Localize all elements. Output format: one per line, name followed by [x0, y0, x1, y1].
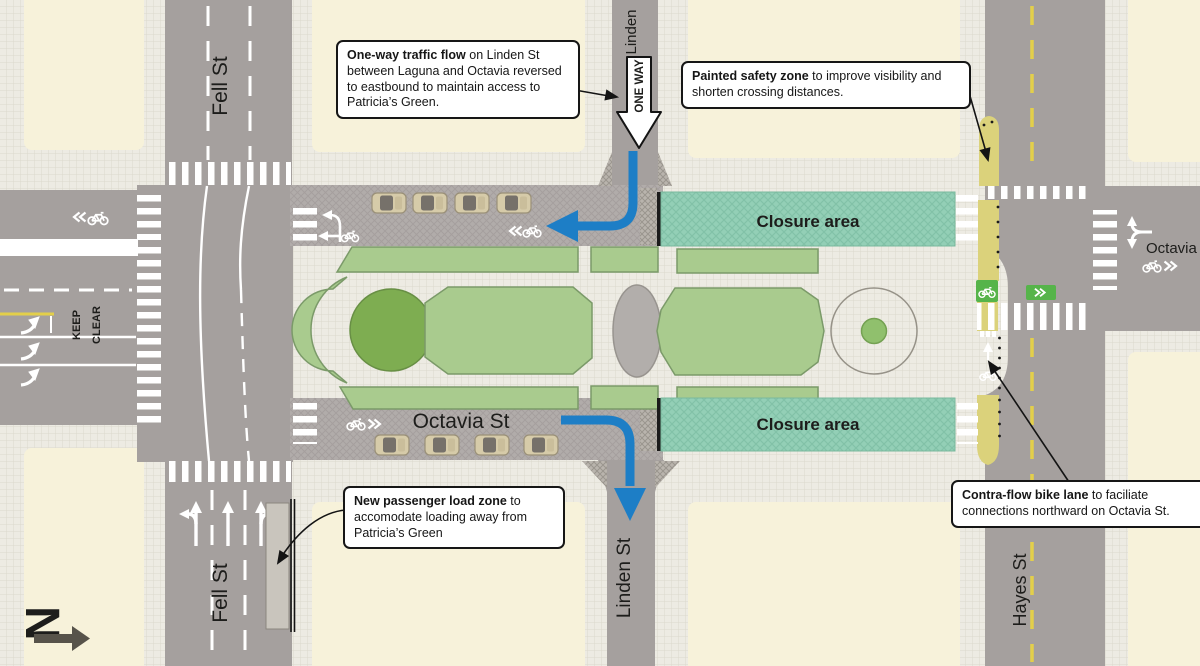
street-label-fell-top: Fell St [209, 56, 232, 116]
parked-car [375, 435, 409, 455]
closure-area-label-south: Closure area [757, 415, 861, 434]
crosswalk [167, 162, 291, 185]
street-label-linden-bottom: Linden St [614, 537, 635, 618]
callout-contraflow: Contra-flow bike lane to faciliate conne… [951, 480, 1200, 528]
lawn-east [657, 288, 824, 375]
painted-safety-zone-south [977, 395, 999, 465]
one-way-sign-label: ONE WAY [634, 59, 646, 113]
planting-strip [340, 387, 578, 409]
parked-car [372, 193, 406, 213]
bike-box-green [976, 280, 998, 302]
crosswalk [137, 190, 161, 240]
planting-strip [591, 386, 658, 409]
crosswalk [956, 193, 978, 245]
callout-one-way: One-way traffic flow on Linden St betwee… [336, 40, 580, 119]
keep-clear-marking: CLEAR [91, 306, 103, 344]
load-zone-area [266, 503, 289, 629]
parked-car [413, 193, 447, 213]
street-label-hayes: Hayes St [1010, 553, 1030, 626]
bulb-north-closure [640, 188, 657, 245]
dotted-crossing [992, 331, 996, 337]
planting-strip [591, 247, 658, 272]
callout-lead: Painted safety zone [692, 69, 809, 83]
dotted-crossing [986, 331, 990, 337]
keep-clear-marking: KEEP [71, 310, 83, 340]
map-canvas: Closure area Closure area [0, 0, 1200, 666]
north-arrow-shaft [34, 634, 72, 643]
parked-car [497, 193, 531, 213]
closure-area-label-north: Closure area [757, 212, 861, 231]
street-label-linden-top: Linden [623, 9, 640, 54]
callout-load-zone: New passenger load zone to accomodate lo… [343, 486, 565, 549]
crosswalk [293, 207, 317, 245]
block-top-left [24, 0, 144, 150]
street-label-octavia-east: Octavia [1146, 240, 1198, 257]
planting-strip [677, 249, 818, 273]
plaza-oval [613, 285, 661, 377]
parked-car [425, 435, 459, 455]
crosswalk [957, 398, 978, 444]
callout-safety-zone: Painted safety zone to improve visibilit… [681, 61, 971, 109]
dotted-crossing [980, 331, 984, 337]
lawn-circle [350, 289, 432, 371]
crosswalk [1093, 210, 1117, 290]
painted-safety-zone-mid [978, 200, 999, 281]
painted-buffer-band [0, 239, 138, 256]
parked-car [524, 435, 558, 455]
lawn-west [425, 287, 592, 374]
fountain-center [862, 319, 887, 344]
callout-lead: One-way traffic flow [347, 48, 466, 62]
passenger-load-zone [266, 499, 295, 632]
block-top-right [1128, 0, 1200, 162]
street-label-octavia-median: Octavia St [413, 410, 510, 433]
planting-strip [337, 247, 578, 272]
parked-car [455, 193, 489, 213]
crosswalk [977, 303, 1087, 330]
crosswalk [167, 461, 291, 482]
upper-left-road [0, 190, 160, 240]
crosswalk [293, 402, 317, 444]
callout-lead: New passenger load zone [354, 494, 507, 508]
crosswalk [983, 186, 1086, 199]
parked-car [475, 435, 509, 455]
block-bottom-mid-right [688, 502, 960, 666]
callout-lead: Contra-flow bike lane [962, 488, 1088, 502]
crosswalk [137, 247, 161, 423]
street-label-fell-bottom: Fell St [209, 563, 232, 623]
street-plan-map: Closure area Closure area [0, 0, 1200, 666]
